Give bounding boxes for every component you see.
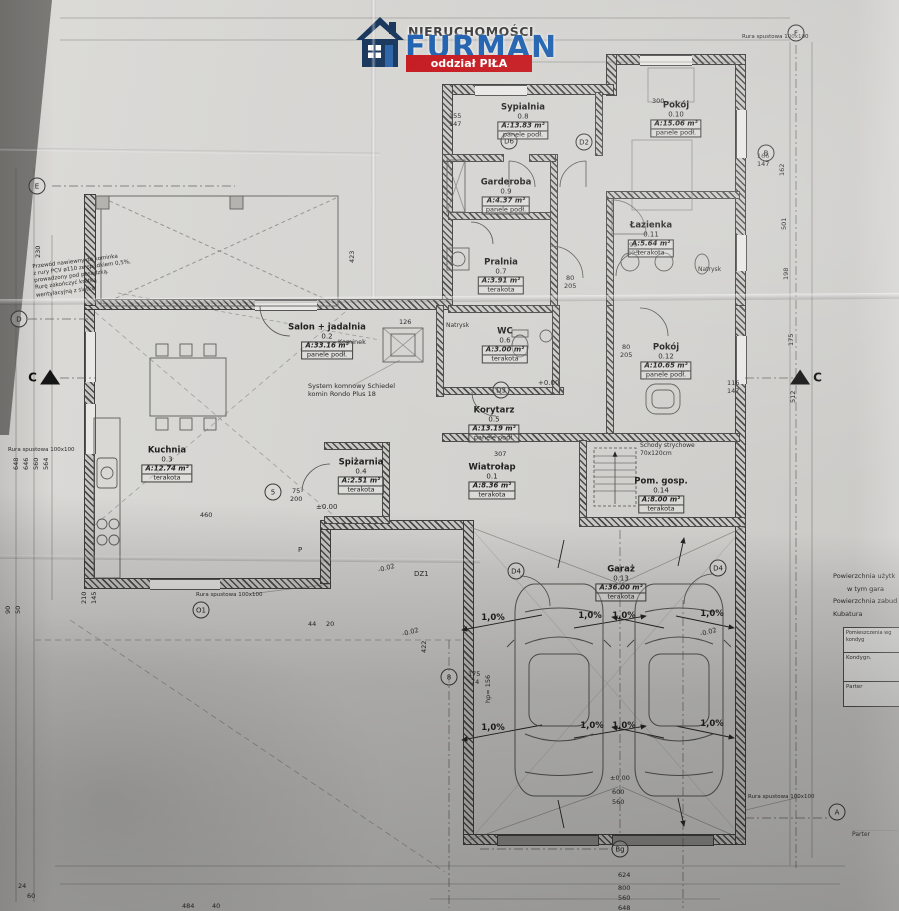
dimension-label: 307	[494, 450, 506, 458]
slope-label: 1,0%	[578, 611, 602, 621]
plan-linework	[0, 0, 899, 911]
axis-marker-e: E	[29, 178, 46, 195]
room-number: 0.5	[468, 416, 519, 424]
plan-annotation: Schody strychowe 70x120cm	[640, 442, 695, 458]
dimension-label: 40	[212, 902, 220, 910]
house-icon	[356, 17, 404, 69]
dimension-label: 560	[32, 458, 40, 470]
summary-line: Kubatura	[833, 608, 899, 621]
room-label: Pralnia0.7A:3.91 m²terakota	[478, 258, 524, 295]
room-floor: terakota	[479, 287, 523, 294]
plan-annotation: +0.00	[538, 379, 559, 388]
dimension-label: 200	[290, 495, 302, 503]
section-triangle-icon	[40, 370, 60, 385]
agency-logo: NIERUCHOMOŚCI FURMAN oddział PIŁA	[356, 11, 542, 75]
room-number: 0.9	[481, 188, 532, 196]
dimension-label: 560	[612, 798, 624, 806]
room-label: Garderoba0.9A:4.37 m²panele podł.	[481, 178, 532, 215]
section-letter: C	[28, 370, 37, 384]
room-label: Sypialnia0.8A:13.83 m²panele podł.	[497, 103, 548, 140]
terrace	[96, 196, 338, 306]
dimension-label: 512	[789, 391, 797, 403]
room-label: Łazienka0.11A:5.64 m²terakota	[628, 221, 674, 258]
room-label: Pom. gosp.0.14A:8.00 m²terakota	[634, 477, 687, 514]
axis-marker-d2: D2	[576, 134, 593, 151]
dimension-label: 116	[727, 379, 739, 387]
dimension-label: 198	[782, 268, 790, 280]
slope-label: 1,0%	[700, 609, 724, 619]
room-info-box: A:15.06 m²panele podł.	[650, 120, 701, 138]
slope-label: 1,0%	[481, 613, 505, 623]
room-info-box: A:4.37 m²panele podł.	[482, 197, 530, 215]
plan-annotation: P	[298, 546, 302, 555]
room-info-box: A:13.83 m²panele podł.	[497, 122, 548, 140]
room-info-box: A:5.64 m²terakota	[628, 240, 674, 258]
plan-annotation: System komnowy Schiedel komin Rondo Plus…	[308, 382, 395, 399]
dimension-label: 210	[80, 592, 88, 604]
table-header: Pomieszczenia wg kondyg	[844, 628, 899, 653]
axis-marker-bg: Bg	[612, 841, 629, 858]
dimension-label: 60	[27, 892, 35, 900]
room-floor: terakota	[629, 250, 673, 257]
dimension-label: 460	[200, 511, 212, 519]
room-info-box: A:12.74 m²terakota	[141, 465, 192, 483]
section-letter: C	[813, 370, 822, 384]
axis-marker-b: B	[758, 145, 775, 162]
plan-annotation: DZ1	[414, 570, 429, 579]
section-triangle-icon	[790, 370, 810, 385]
table-cell: Parter	[852, 830, 898, 838]
room-floor: terakota	[142, 475, 191, 482]
room-label: Kuchnia0.3A:12.74 m²terakota	[141, 446, 192, 483]
room-info-box: A:13.19 m²panele podł.	[468, 425, 519, 443]
slope-label: 1,0%	[580, 721, 604, 731]
dimension-label: 624	[618, 871, 630, 879]
axis-marker-a: A	[829, 804, 846, 821]
dimension-label: 44	[308, 620, 316, 628]
dimension-label: 90	[4, 606, 12, 614]
dimension-label: 145	[90, 592, 98, 604]
room-number: 0.11	[628, 231, 674, 239]
room-floor: panele podł.	[498, 132, 547, 139]
room-number: 0.8	[497, 113, 548, 121]
plan-annotation: Rura spustowa 100x100	[748, 794, 815, 801]
logo-banner: oddział PIŁA	[406, 55, 532, 72]
room-number: 0.14	[634, 487, 687, 495]
plan-annotation: Natrysk	[446, 322, 469, 330]
room-number: 0.6	[482, 337, 528, 345]
dimension-label: 422	[420, 641, 428, 653]
dimension-label: 147	[449, 120, 461, 128]
dimension-label: 648	[12, 458, 20, 470]
plan-annotation: ±0.00	[316, 503, 337, 512]
room-label: Pokój0.12A:10.65 m²panele podł.	[640, 343, 691, 380]
room-floor: terakota	[596, 594, 645, 601]
dimension-chains	[16, 18, 845, 902]
summary-table: Pomieszczenia wg kondyg Kondygn. Parter	[843, 627, 899, 707]
room-info-box: A:36.00 m²terakota	[595, 584, 646, 602]
room-number: 0.3	[141, 456, 192, 464]
dimension-label: 205	[620, 351, 632, 359]
axis-marker-5: 5	[265, 484, 282, 501]
dimension-label: 560	[618, 894, 630, 902]
dimension-label: 126	[399, 318, 411, 326]
dimension-label: 162	[778, 164, 786, 176]
slope-label: 1,0%	[481, 723, 505, 733]
dimension-label: 24	[18, 882, 26, 890]
room-floor: terakota	[483, 356, 527, 363]
room-info-box: A:3.91 m²terakota	[478, 277, 524, 295]
room-label: Salon + jadalnia0.2A:33.16 m²panele podł…	[288, 323, 366, 360]
axis-marker-d3: D3	[493, 382, 510, 399]
plan-annotation: Natrysk	[698, 266, 721, 274]
dimension-label: 800	[618, 884, 630, 892]
room-floor: terakota	[339, 487, 383, 494]
room-label: Garaż0.13A:36.00 m²terakota	[595, 565, 646, 602]
dimension-label: 501	[780, 218, 788, 230]
axis-marker-d: D	[11, 311, 28, 328]
room-floor: panele podł.	[302, 352, 351, 359]
dimension-label: 648	[618, 904, 630, 911]
axis-marker-d4: D4	[710, 560, 727, 577]
room-info-box: A:10.65 m²panele podł.	[640, 362, 691, 380]
plan-annotation: ±0.00	[610, 774, 630, 782]
dimension-label: 230	[34, 246, 42, 258]
dimension-label: 484	[182, 902, 194, 910]
room-floor: panele podł.	[641, 372, 690, 379]
summary-line: w tym gara	[833, 583, 899, 596]
table-cell: Kondygn.	[844, 653, 899, 682]
dimension-label: 423	[348, 251, 356, 263]
room-info-box: A:2.51 m²terakota	[338, 477, 384, 495]
room-floor: terakota	[639, 506, 683, 513]
axis-marker-8: 8	[441, 669, 458, 686]
dimension-label: hp= 156	[484, 675, 492, 703]
room-floor: panele podł.	[469, 435, 518, 442]
room-floor: panele podł.	[483, 207, 529, 214]
dimension-label: 80	[566, 274, 574, 282]
area-summary: Powierzchnia użytk w tym gara Powierzchn…	[833, 570, 899, 621]
slope-label: 1,0%	[612, 721, 636, 731]
room-number: 0.7	[478, 268, 524, 276]
axis-marker-o1: O1	[193, 602, 210, 619]
room-label: Spiżarnia0.4A:2.51 m²terakota	[338, 458, 384, 495]
floor-plan-photo: Sypialnia0.8A:13.83 m²panele podł.Pokój0…	[0, 0, 899, 911]
room-number: 0.2	[288, 333, 366, 341]
dimension-label: 50	[14, 606, 22, 614]
dimension-label: 600	[612, 788, 624, 796]
room-number: 0.4	[338, 468, 384, 476]
room-info-box: A:3.00 m²terakota	[482, 346, 528, 364]
slope-label: 1,0%	[612, 611, 636, 621]
room-info-box: A:33.16 m²panele podł.	[301, 342, 352, 360]
dimension-label: 205	[564, 282, 576, 290]
room-label: Pokój0.10A:15.06 m²panele podł.	[650, 101, 701, 138]
room-info-box: A:8.36 m²terakota	[469, 482, 515, 500]
dimension-label: 175	[468, 670, 480, 678]
dimension-label: 80	[622, 343, 630, 351]
dimension-label: 147	[727, 387, 739, 395]
room-floor: terakota	[470, 492, 514, 499]
section-marker-c: C	[28, 370, 60, 385]
room-label: WC0.6A:3.00 m²terakota	[482, 327, 528, 364]
table-cell: Parter	[844, 682, 899, 692]
slope-label: 1,0%	[700, 719, 724, 729]
axis-marker-d4: D4	[508, 563, 525, 580]
axis-marker-f: F	[788, 25, 805, 42]
plan-annotation: Rura spustowa 100x100	[8, 447, 75, 454]
plan-annotation: Rura spustowa 100x100	[196, 592, 263, 599]
dimension-label: 175	[787, 334, 795, 346]
room-label: Wiatrołap0.1A:8.36 m²terakota	[468, 463, 515, 500]
room-number: 0.12	[640, 353, 691, 361]
dimension-label: 74	[471, 678, 479, 686]
summary-line: Powierzchnia użytk	[833, 570, 899, 583]
room-number: 0.13	[595, 575, 646, 583]
dimension-label: 646	[22, 458, 30, 470]
room-label: Korytarz0.5A:13.19 m²panele podł.	[468, 406, 519, 443]
room-floor: panele podł.	[651, 130, 700, 137]
attic-stairs	[594, 448, 636, 506]
dimension-label: 20	[326, 620, 334, 628]
room-info-box: A:8.00 m²terakota	[638, 496, 684, 514]
dimension-label: 75	[292, 487, 300, 495]
room-number: 0.1	[468, 473, 515, 481]
dimension-label: 564	[42, 458, 50, 470]
summary-line: Powierzchnia zabud	[833, 595, 899, 608]
room-number: 0.10	[650, 111, 701, 119]
dimension-label: 155	[449, 112, 461, 120]
section-marker-c: C	[790, 370, 822, 385]
